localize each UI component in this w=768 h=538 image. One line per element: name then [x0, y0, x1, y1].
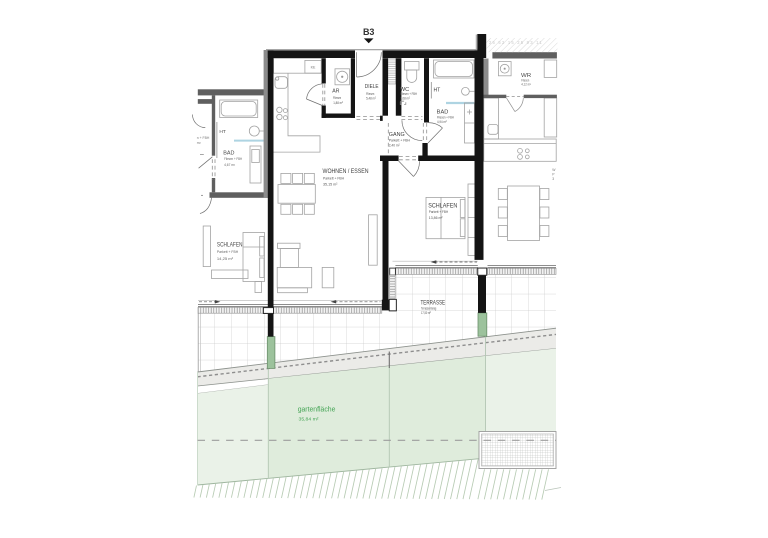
svg-text:BAD: BAD: [223, 151, 234, 157]
svg-text:n + FBH: n + FBH: [197, 136, 210, 140]
svg-text:4,94 m²: 4,94 m²: [437, 120, 447, 124]
svg-text:Parkett + FBH: Parkett + FBH: [429, 210, 449, 214]
svg-text:13,86 m²: 13,86 m²: [429, 216, 444, 220]
svg-text:WOHNEN / ESSEN: WOHNEN / ESSEN: [323, 168, 369, 175]
svg-text:Fliesen + FBH: Fliesen + FBH: [224, 157, 242, 161]
svg-text:Fliesen: Fliesen: [366, 92, 374, 96]
svg-text:KE: KE: [311, 66, 316, 70]
svg-text:Fliesen + FBH: Fliesen + FBH: [437, 116, 454, 120]
svg-text:25 52 15 25 93 11: 25 52 15 25 93 11: [489, 40, 543, 45]
svg-text:TERRASSE: TERRASSE: [421, 300, 446, 306]
svg-text:5,48 m²: 5,48 m²: [366, 97, 376, 101]
svg-text:gartenfläche: gartenfläche: [298, 407, 336, 414]
svg-text:Parkett + FBH: Parkett + FBH: [217, 250, 239, 254]
svg-text:Parkett + FBH: Parkett + FBH: [389, 139, 411, 143]
svg-text:3: 3: [552, 177, 554, 181]
svg-text:2,08 m²: 2,08 m²: [400, 97, 410, 101]
svg-text:SCHLAFEN: SCHLAFEN: [428, 202, 457, 209]
svg-text:4,12 m²: 4,12 m²: [521, 83, 531, 87]
svg-text:4,67 m²: 4,67 m²: [224, 163, 236, 167]
svg-text:Fliesen: Fliesen: [333, 96, 341, 100]
svg-text:17,50 m²: 17,50 m²: [421, 311, 431, 315]
svg-text:1,88 m²: 1,88 m²: [333, 101, 343, 105]
svg-text:HT: HT: [434, 88, 441, 94]
svg-text:Parkett + FBH: Parkett + FBH: [323, 175, 344, 180]
svg-text:GANG: GANG: [389, 132, 405, 138]
svg-text:35,84 m²: 35,84 m²: [299, 416, 320, 421]
svg-text:35,15 m²: 35,15 m²: [323, 182, 338, 187]
svg-text:2,40 m²: 2,40 m²: [389, 144, 401, 148]
svg-text:AR: AR: [332, 89, 339, 95]
svg-text:DIELE: DIELE: [365, 84, 379, 90]
svg-text:HT: HT: [219, 129, 226, 135]
svg-text:B3: B3: [363, 27, 375, 38]
svg-text:SCHLAFEN: SCHLAFEN: [217, 243, 243, 249]
svg-text:Terrassenbelag: Terrassenbelag: [421, 307, 436, 311]
svg-text:Fliesen + FBH: Fliesen + FBH: [400, 92, 417, 96]
svg-text:14,25 m²: 14,25 m²: [217, 257, 234, 261]
